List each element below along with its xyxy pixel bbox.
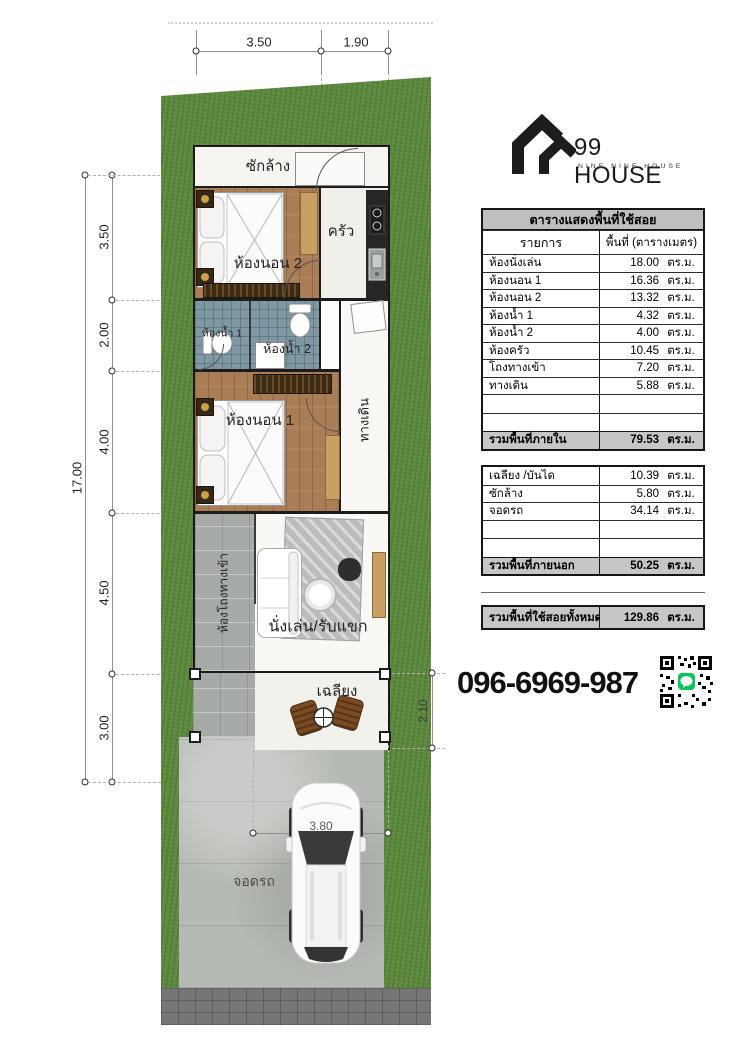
row-label: เฉลียง /บันได <box>483 467 599 485</box>
coffee-table-icon <box>303 578 337 612</box>
row-value: 5.88 <box>600 380 659 392</box>
wall <box>254 514 256 604</box>
col-area-header: พื้นที่ (ตารางเมตร) <box>599 231 703 254</box>
wall <box>195 369 340 372</box>
row-value: 10.39 <box>600 470 659 482</box>
table-row: ทางเดิน5.88ตร.ม. <box>483 377 703 395</box>
row-unit: ตร.ม. <box>659 342 703 360</box>
plant-icon <box>338 558 361 581</box>
dim-carport-width: 3.80 <box>309 819 332 833</box>
dim-left-400: 4.00 <box>97 429 112 454</box>
kitchen-sink-icon <box>368 248 386 281</box>
column <box>189 731 201 743</box>
left-seg-dim-line <box>112 175 113 782</box>
row-unit: ตร.ม. <box>659 272 703 290</box>
wall <box>249 301 251 371</box>
wall <box>195 186 388 188</box>
dim-left-total: 17.00 <box>70 462 85 495</box>
stove-icon <box>369 205 385 235</box>
table-row: ห้องน้ำ 24.00ตร.ม. <box>483 324 703 342</box>
tv-cabinet-icon <box>372 552 386 618</box>
total-label: รวมพื้นที่ใช้สอยทั้งหมด <box>483 609 599 627</box>
row-unit: ตร.ม. <box>659 307 703 325</box>
desk-icon <box>300 192 318 255</box>
dim-marker <box>429 745 436 752</box>
porch-dim-line <box>432 673 433 748</box>
car-icon <box>286 781 366 965</box>
living-label: นั่งเล่น/รับแขก <box>268 615 367 640</box>
row-unit: ตร.ม. <box>659 431 703 449</box>
exterior-area-table: เฉลียง /บันได10.39ตร.ม. ซักล้าง5.80ตร.ม.… <box>481 465 705 576</box>
phone-number: 096-6969-987 <box>457 665 638 701</box>
porch-guide <box>392 673 445 674</box>
row-unit: ตร.ม. <box>659 254 703 272</box>
row-unit: ตร.ม. <box>659 467 703 485</box>
logo-tagline: NINE NINE HOUSE <box>578 163 683 170</box>
nightstand-icon <box>196 486 214 504</box>
column <box>379 731 391 743</box>
row-label: ห้องน้ำ 1 <box>483 307 599 325</box>
dim-top-190: 1.90 <box>343 35 368 50</box>
row-label: ห้องน้ำ 2 <box>483 324 599 342</box>
row-unit: ตร.ม. <box>659 289 703 307</box>
dim-porch-depth: 2.10 <box>416 699 430 722</box>
top-dim-line <box>196 51 388 52</box>
logo-house-icon <box>512 114 576 181</box>
row-label: โถงทางเข้า <box>483 359 599 377</box>
bath2-label: ห้องน้ำ 2 <box>263 339 311 359</box>
dim-marker <box>109 510 116 517</box>
interior-area-table: ตารางแสดงพื้นที่ใช้สอย รายการ พื้นที่ (ต… <box>481 208 705 451</box>
dim-left-200: 2.00 <box>97 322 112 347</box>
total-value: 79.53 <box>600 434 659 446</box>
row-unit: ตร.ม. <box>659 485 703 503</box>
table-row: ห้องน้ำ 14.32ตร.ม. <box>483 307 703 325</box>
dim-left-300: 3.00 <box>97 715 112 740</box>
column <box>379 668 391 680</box>
porch-label: เฉลียง <box>317 679 358 703</box>
empty-row <box>483 394 703 413</box>
nightstand-icon <box>196 398 214 416</box>
column <box>189 668 201 680</box>
logo: 99 HOUSE NINE NINE HOUSE <box>512 112 692 182</box>
dim-top-350: 3.50 <box>246 35 271 50</box>
wall <box>195 298 388 301</box>
table-row: โถงทางเข้า7.20ตร.ม. <box>483 359 703 377</box>
row-value: 10.45 <box>600 345 659 357</box>
row-value: 16.36 <box>600 275 659 287</box>
row-label: ห้องครัว <box>483 342 599 360</box>
row-value: 7.20 <box>600 362 659 374</box>
col-item-header: รายการ <box>483 233 599 253</box>
table-row: ห้องนอน 116.36ตร.ม. <box>483 272 703 290</box>
dim-marker <box>385 830 392 837</box>
car-guide <box>253 745 254 833</box>
porch-table-icon <box>313 707 334 728</box>
top-boundary-dotted-line <box>168 22 433 24</box>
row-label: ห้องนอน 2 <box>483 289 599 307</box>
row-unit: ตร.ม. <box>659 557 703 575</box>
dim-marker <box>250 830 257 837</box>
table-row: ห้องนั่งเล่น18.00ตร.ม. <box>483 254 703 272</box>
dim-left-450: 4.50 <box>97 580 112 605</box>
kitchen-label: ครัว <box>328 219 355 243</box>
row-label: ทางเดิน <box>483 377 599 395</box>
wall <box>195 511 388 514</box>
total-value: 50.25 <box>600 560 659 572</box>
car-guide <box>388 745 389 833</box>
row-unit: ตร.ม. <box>659 609 703 627</box>
table-row: จอดรถ34.14ตร.ม. <box>483 502 703 520</box>
row-unit: ตร.ม. <box>659 359 703 377</box>
grand-total-row: รวมพื้นที่ใช้สอยทั้งหมด129.86ตร.ม. <box>483 607 703 628</box>
desk-icon <box>325 435 340 500</box>
total-label: รวมพื้นที่ภายนอก <box>483 557 599 575</box>
toilet-icon <box>286 303 314 339</box>
dim-marker <box>429 670 436 677</box>
wardrobe-icon <box>253 374 332 394</box>
row-value: 5.80 <box>600 488 659 500</box>
porch-guide <box>392 748 445 749</box>
row-label: ซักล้าง <box>483 485 599 503</box>
bedroom2-label: ห้องนอน 2 <box>234 251 302 275</box>
empty-row <box>483 538 703 557</box>
left-total-dim-line <box>85 175 86 782</box>
carport-label: จอดรถ <box>233 871 275 893</box>
row-value: 18.00 <box>600 257 659 269</box>
line-qr-code <box>658 654 714 710</box>
section-divider <box>481 592 705 593</box>
laundry-label: ซักล้าง <box>246 154 290 178</box>
row-unit: ตร.ม. <box>659 377 703 395</box>
dim-marker <box>109 368 116 375</box>
dim-marker <box>109 297 116 304</box>
row-unit: ตร.ม. <box>659 502 703 520</box>
dim-marker <box>318 48 325 55</box>
refrigerator-icon <box>350 300 386 334</box>
dim-left-350: 3.50 <box>97 224 112 249</box>
interior-total-row: รวมพื้นที่ภายใน79.53ตร.ม. <box>483 431 703 449</box>
empty-row <box>483 520 703 539</box>
grand-total-table: รวมพื้นที่ใช้สอยทั้งหมด129.86ตร.ม. <box>481 605 705 630</box>
wall <box>319 301 321 371</box>
road-strip <box>161 988 431 1025</box>
row-label: จอดรถ <box>483 502 599 520</box>
row-value: 34.14 <box>600 505 659 517</box>
row-label: ห้องนอน 1 <box>483 272 599 290</box>
table-title: ตารางแสดงพื้นที่ใช้สอย <box>483 210 703 230</box>
row-value: 4.32 <box>600 310 659 322</box>
total-value: 129.86 <box>600 612 659 624</box>
dim-marker <box>109 671 116 678</box>
dim-marker <box>385 48 392 55</box>
dim-marker <box>193 48 200 55</box>
entry-hall-label: ห้องโถงทางเข้า <box>215 553 234 633</box>
exterior-total-row: รวมพื้นที่ภายนอก50.25ตร.ม. <box>483 557 703 575</box>
bath1-label: ห้องน้ำ 1 <box>202 325 242 342</box>
table-row: ห้องนอน 213.32ตร.ม. <box>483 289 703 307</box>
floor-plan-sheet: 3.50 1.90 3.50 2.00 4.00 4.50 3.00 17.00 <box>0 0 750 1061</box>
table-row: เฉลียง /บันได10.39ตร.ม. <box>483 467 703 485</box>
nightstand-icon <box>196 190 214 208</box>
row-label: ห้องนั่งเล่น <box>483 254 599 272</box>
hallway-label: ทางเดิน <box>354 398 375 442</box>
empty-row <box>483 413 703 432</box>
row-unit: ตร.ม. <box>659 324 703 342</box>
table-header-row: รายการ พื้นที่ (ตารางเมตร) <box>483 230 703 254</box>
table-row: ซักล้าง5.80ตร.ม. <box>483 485 703 503</box>
bedroom1-label: ห้องนอน 1 <box>226 408 294 432</box>
logo-brand-text: 99 HOUSE <box>574 134 692 190</box>
table-row: ห้องครัว10.45ตร.ม. <box>483 342 703 360</box>
row-value: 4.00 <box>600 327 659 339</box>
total-label: รวมพื้นที่ภายใน <box>483 431 599 449</box>
row-value: 13.32 <box>600 292 659 304</box>
